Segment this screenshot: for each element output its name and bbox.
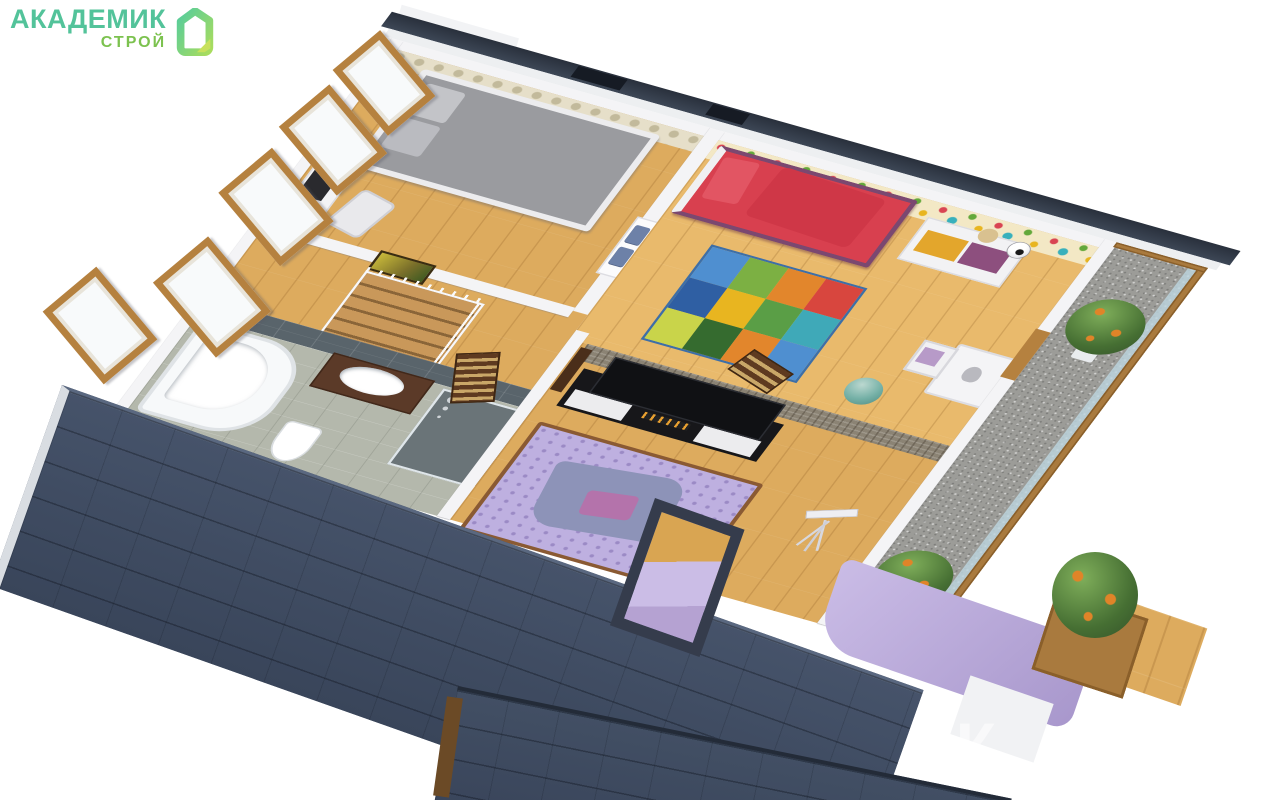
logo-title: АКАДЕМИК (10, 6, 166, 33)
watermark: АК (905, 708, 999, 784)
floorplan-render: АКАДЕМИК СТРОЙ (0, 0, 1280, 800)
bathroom-door (450, 352, 501, 404)
telescope-tube (805, 509, 858, 519)
orange-tree-corner (1052, 552, 1138, 638)
logo-text: АКАДЕМИК СТРОЙ (10, 6, 166, 52)
logo-subtitle: СТРОЙ (101, 33, 166, 52)
dormer-window (43, 267, 158, 385)
logo: АКАДЕМИК СТРОЙ (10, 6, 218, 60)
eco-house-icon (172, 8, 218, 60)
